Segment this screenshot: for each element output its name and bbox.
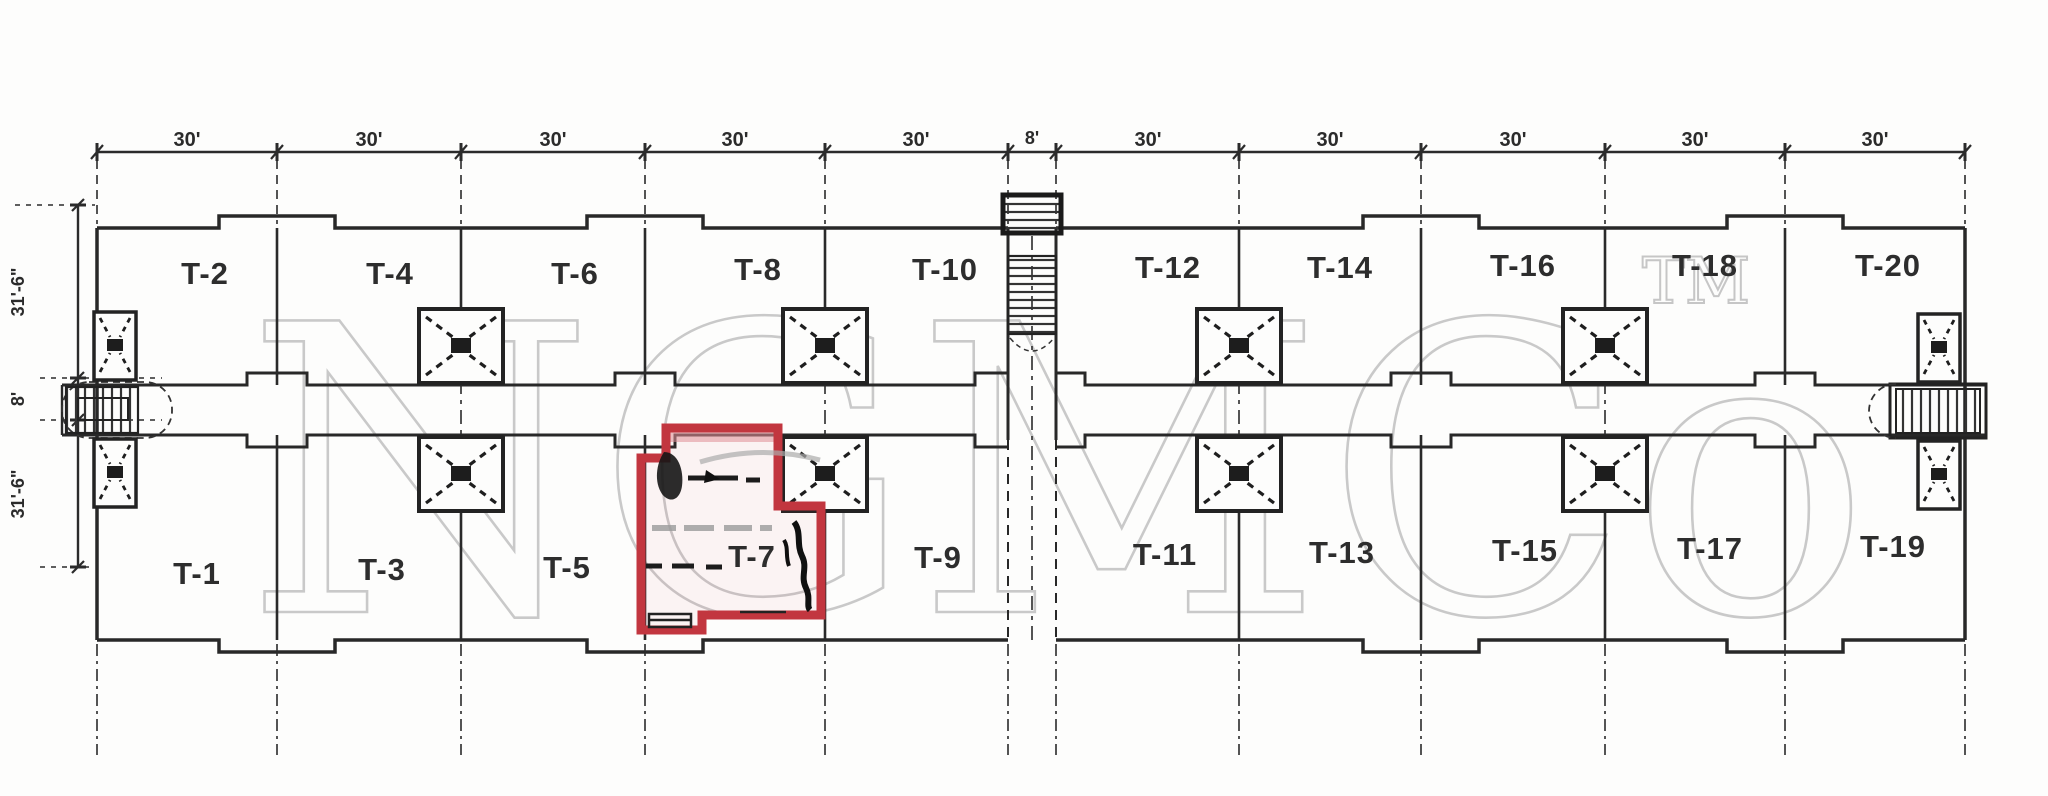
unit-label-t6: T-6: [551, 256, 599, 291]
patio-box-end: [1918, 314, 1960, 382]
unit-label-t16: T-16: [1490, 248, 1556, 283]
unit-label-t17: T-17: [1677, 531, 1743, 566]
dim-label-bay-6: 30': [1134, 129, 1161, 151]
unit-label-t13: T-13: [1309, 535, 1375, 570]
patio-box: [419, 437, 503, 511]
patio-box: [783, 309, 867, 383]
unit-label-t19: T-19: [1860, 529, 1926, 564]
dim-label-bay-9: 30': [1681, 129, 1708, 151]
scanned-floor-plan-page: NGMCo TM 30' 30' 30' 30' 30' 8' 30' 30' …: [0, 0, 2048, 796]
dim-label-left-corridor: 8': [8, 392, 28, 406]
dim-label-bay-4: 30': [721, 129, 748, 151]
dim-label-bay-2: 30': [355, 129, 382, 151]
patio-box: [1563, 309, 1647, 383]
unit-label-t3: T-3: [358, 552, 406, 587]
unit-label-t5: T-5: [543, 550, 591, 585]
dim-label-bay-1: 30': [173, 129, 200, 151]
dim-label-bay-10: 30': [1861, 129, 1888, 151]
stair-left: [62, 382, 172, 438]
dim-label-bay-3: 30': [539, 129, 566, 151]
unit-label-t14: T-14: [1307, 250, 1373, 285]
patio-box-end: [94, 439, 136, 507]
unit-label-t15: T-15: [1492, 533, 1558, 568]
patio-box: [1197, 309, 1281, 383]
stair-right: [1869, 384, 1986, 438]
unit-label-t4: T-4: [366, 256, 414, 291]
patio-box-end: [1918, 441, 1960, 509]
unit-label-t9: T-9: [914, 540, 962, 575]
unit-label-t20: T-20: [1855, 248, 1921, 283]
unit-label-t11: T-11: [1133, 537, 1197, 572]
unit-label-t1: T-1: [173, 556, 221, 591]
stair-center: [1003, 195, 1061, 351]
patio-box-end: [94, 312, 136, 380]
patio-box: [1197, 437, 1281, 511]
dim-label-bay-5: 30': [902, 129, 929, 151]
dim-label-center-gap: 8': [1025, 128, 1039, 148]
dim-label-bay-8: 30': [1499, 129, 1526, 151]
dim-label-left-upper: 31'-6": [8, 268, 28, 317]
dim-label-left-lower: 31'-6": [8, 470, 28, 519]
unit-label-t10: T-10: [912, 252, 978, 287]
unit-label-t8: T-8: [734, 252, 782, 287]
patio-box: [419, 309, 503, 383]
unit-label-t18: T-18: [1672, 248, 1738, 283]
dim-label-bay-7: 30': [1316, 129, 1343, 151]
unit-label-t2: T-2: [181, 256, 229, 291]
unit-label-t7: T-7: [728, 539, 776, 574]
floor-plan-drawing: NGMCo TM 30' 30' 30' 30' 30' 8' 30' 30' …: [0, 0, 2048, 796]
patio-box: [1563, 437, 1647, 511]
unit-label-t12: T-12: [1135, 250, 1201, 285]
patio-box: [783, 437, 867, 511]
